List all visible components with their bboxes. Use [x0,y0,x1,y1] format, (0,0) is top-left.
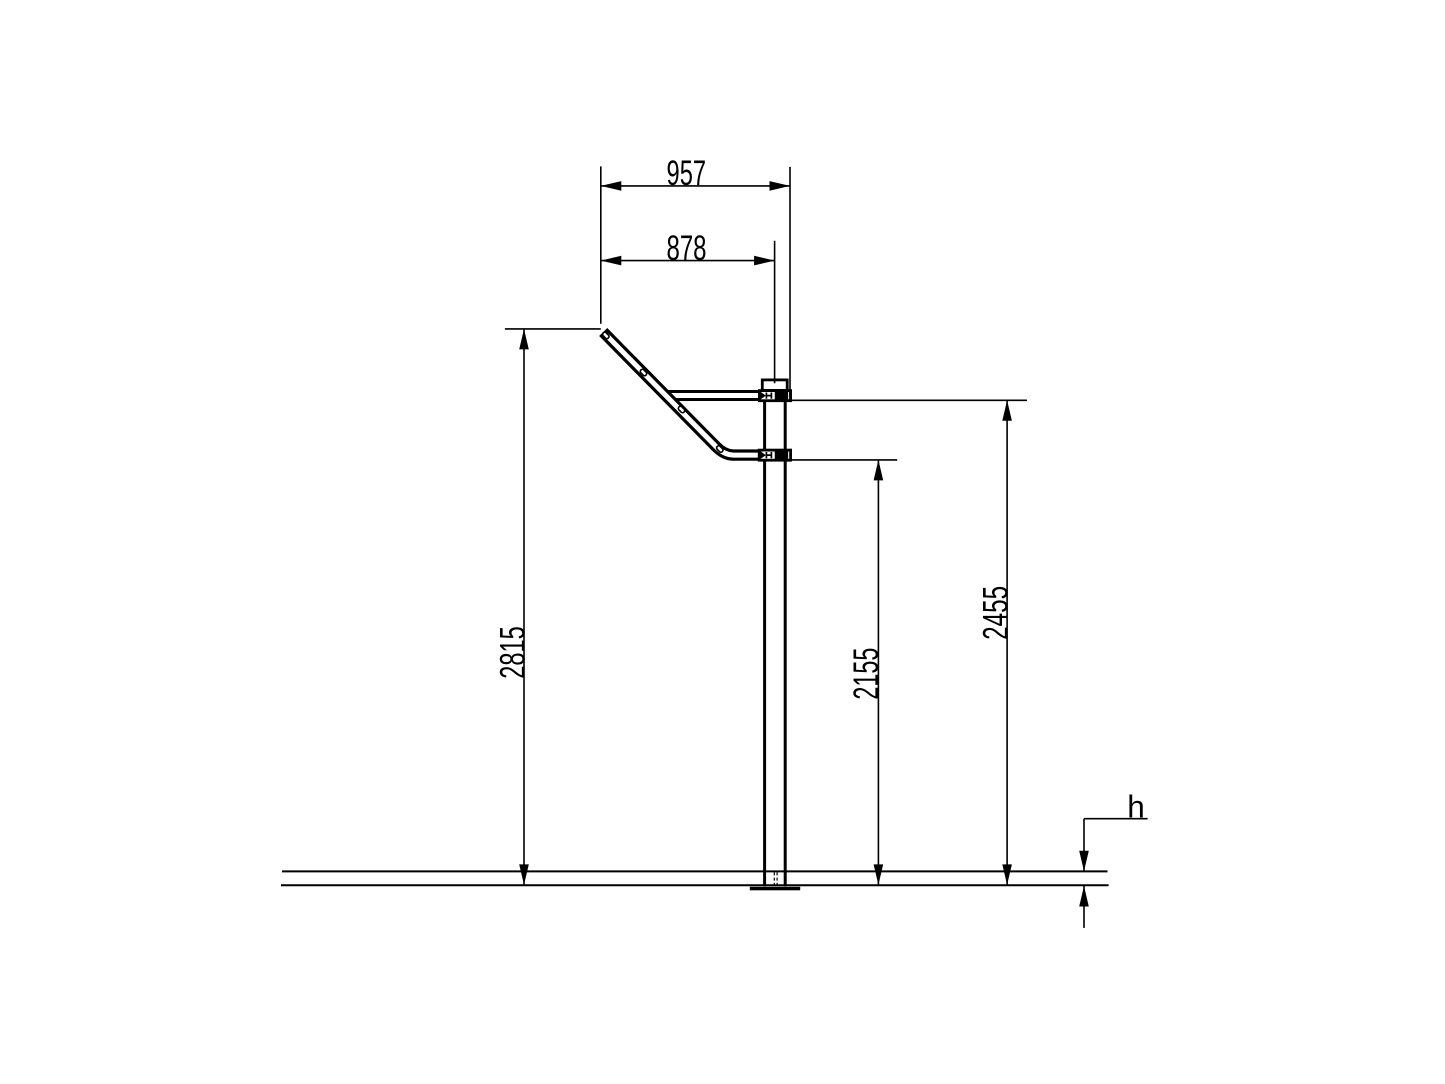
svg-text:957: 957 [667,154,707,193]
svg-text:2155: 2155 [847,648,886,700]
svg-text:2815: 2815 [494,626,533,679]
svg-text:2455: 2455 [977,586,1016,640]
svg-text:h: h [1127,788,1145,824]
svg-text:878: 878 [667,229,707,268]
